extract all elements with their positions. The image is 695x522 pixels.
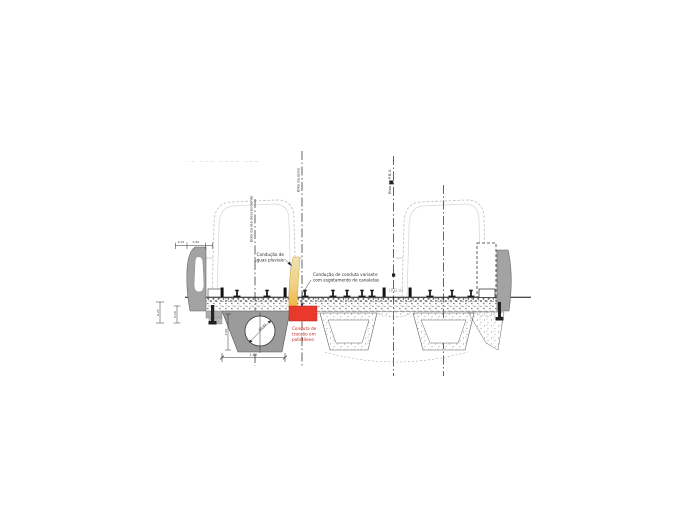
annotation-traction-line2: tracção em: [292, 332, 316, 337]
dim-left-a: 0.25: [156, 309, 160, 316]
post-marker: [383, 288, 386, 298]
box-girder-left: [320, 313, 377, 350]
annotation-conduit-line2: com esgotamento de canaletas: [313, 278, 379, 283]
right-parapet: [496, 250, 512, 321]
bridge-axis-label: Eixo da obra: [296, 168, 301, 192]
parapet-drain-profile: [194, 257, 204, 292]
annotation-drain: Condução de águas pluviais: [254, 252, 292, 266]
annotation-traction: Conduta de tracção em polietileno: [292, 326, 317, 342]
rail-fastener: [427, 290, 434, 297]
rail-fastener: [344, 290, 351, 297]
annotation-conduit-line1: Condução de conduta variante: [313, 272, 378, 277]
box-girder-right: [413, 313, 474, 350]
pbv-axis-label: Eixo do P.B.V.: [387, 169, 392, 194]
annotation-drain-line2: águas pluviais: [254, 258, 284, 263]
rail-fastener: [449, 290, 456, 297]
traction-conduit-highlight: [289, 306, 317, 321]
track-rails: [221, 288, 475, 298]
service-block: Ø0.60: [222, 311, 290, 353]
dim-left-b: 0.20: [173, 311, 177, 318]
technical-drawing-page: – — ——— ———— ——— Eixo da via descendente…: [0, 0, 695, 522]
ballast-layer: [206, 298, 497, 312]
dim-top-a: 0.15: [178, 240, 185, 244]
faint-note-text: – — ——— ———— ———: [185, 159, 260, 164]
dim-block-width: 1.60: [250, 353, 258, 357]
post-marker: [221, 288, 224, 298]
anchor-bolt-left: [211, 305, 214, 322]
cable-trough-right: [479, 289, 495, 298]
post-marker: [409, 288, 412, 298]
annotation-traction-line1: Conduta de: [292, 326, 317, 331]
rail-fastener: [468, 290, 475, 297]
pbv-tag-label: (P.B.V): [389, 288, 404, 294]
rail-fastener: [330, 290, 337, 297]
bridge-cross-section-drawing: – — ——— ———— ——— Eixo da via descendente…: [0, 0, 695, 522]
rail-fastener: [359, 290, 366, 297]
left-parapet: [187, 247, 206, 311]
left-clearance-gauge: [206, 200, 302, 297]
dim-top-b: 0.40: [193, 240, 200, 244]
rail-fastener: [234, 290, 241, 297]
annotation-traction-line3: polietileno: [292, 337, 314, 342]
dim-block-height: 0.40: [224, 329, 228, 336]
axis-marker-mid: [392, 274, 395, 277]
left-track-axis-label: Eixo da via descendente: [249, 195, 254, 242]
rail-fastener: [264, 290, 271, 297]
annotation-drain-line1: Condução de: [257, 252, 285, 257]
cable-trough-left: [208, 289, 222, 297]
rail-fastener: [369, 290, 376, 297]
post-marker: [284, 288, 287, 298]
